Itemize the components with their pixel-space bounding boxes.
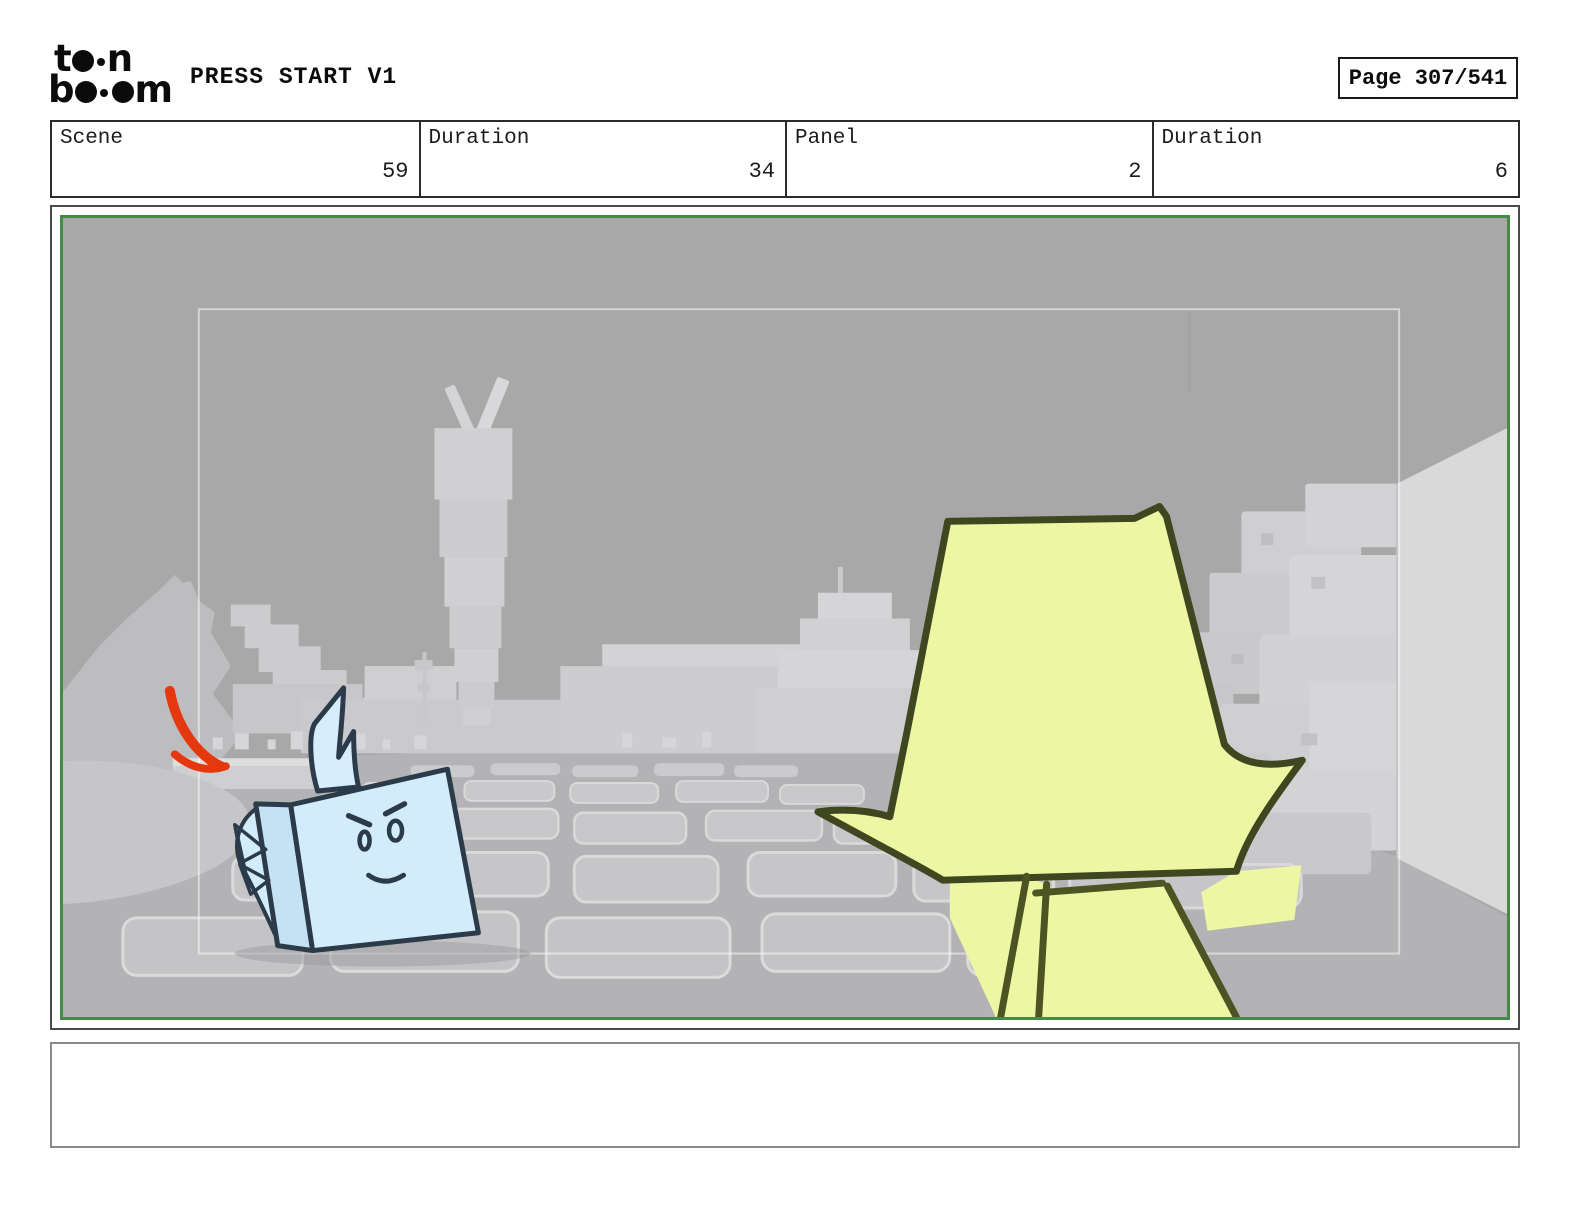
panel-label: Panel xyxy=(795,126,1144,152)
info-cell-scene-duration: Duration 34 xyxy=(419,122,786,196)
caption-box xyxy=(50,1042,1520,1148)
scene-label: Scene xyxy=(60,126,411,152)
logo-dot-icon xyxy=(72,50,94,72)
storyboard-export-page: { "header": { "title": "PRESS START V1",… xyxy=(0,0,1584,1224)
duration-value: 34 xyxy=(749,159,777,185)
duration-value: 6 xyxy=(1495,159,1510,185)
info-cell-scene: Scene 59 xyxy=(52,122,419,196)
logo-dot-icon xyxy=(75,81,97,103)
duration-label: Duration xyxy=(429,126,778,152)
logo-dot-icon xyxy=(97,58,105,66)
panel-info-table: Scene 59 Duration 34 Panel 2 Duration 6 xyxy=(50,120,1520,198)
page-number-badge: Page 307/541 xyxy=(1338,57,1518,99)
storyboard-drawing xyxy=(63,218,1507,1017)
logo-dot-icon xyxy=(100,89,108,97)
duration-label: Duration xyxy=(1162,126,1511,152)
logo-dot-icon xyxy=(112,81,134,103)
info-cell-panel-duration: Duration 6 xyxy=(1152,122,1519,196)
project-title: PRESS START V1 xyxy=(190,64,397,90)
toonboom-logo: t n b m xyxy=(54,42,171,106)
scene-value: 59 xyxy=(382,159,410,185)
panel-value: 2 xyxy=(1128,159,1143,185)
storyboard-panel-border xyxy=(60,215,1510,1020)
info-cell-panel: Panel 2 xyxy=(785,122,1152,196)
logo-letter: n xyxy=(107,42,131,75)
cube-front-face xyxy=(291,769,479,950)
storyboard-panel-frame xyxy=(50,205,1520,1030)
logo-letter: m xyxy=(135,73,172,106)
right-wall xyxy=(1397,428,1507,914)
logo-letter: b xyxy=(48,73,73,106)
